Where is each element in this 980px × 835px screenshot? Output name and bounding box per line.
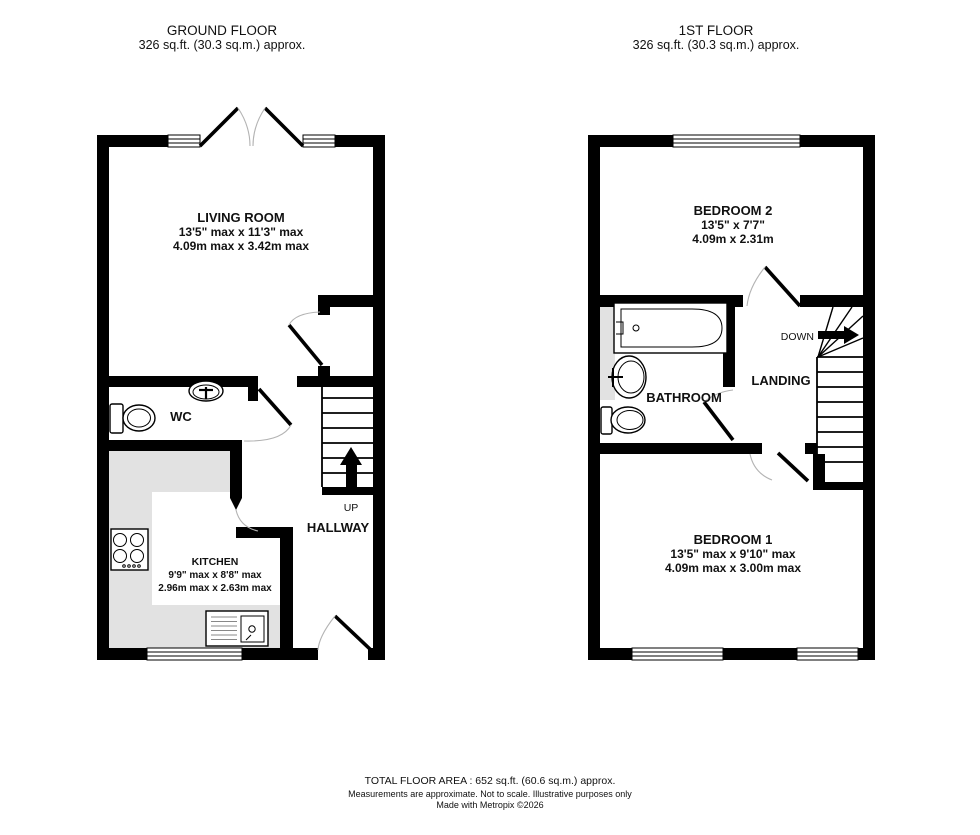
credit-text: Made with Metropix ©2026: [436, 800, 543, 810]
wc-label: WC: [170, 409, 192, 424]
footer: TOTAL FLOOR AREA : 652 sq.ft. (60.6 sq.m…: [348, 775, 632, 810]
kitchen-label: KITCHEN: [192, 556, 239, 568]
down-arrow-icon: [818, 326, 859, 344]
ground-floor-title: GROUND FLOOR: [167, 23, 278, 38]
living-room-dimensions-metric: 4.09m max x 3.42m max: [173, 239, 309, 253]
floorplan-page: GROUND FLOOR 326 sq.ft. (30.3 sq.m.) app…: [0, 0, 980, 835]
staircase-ground: [322, 387, 373, 493]
kitchen-dimensions-imperial: 9'9" max x 8'8" max: [168, 570, 262, 581]
ground-floor-plan: LIVING ROOM 13'5" max x 11'3" max 4.09m …: [97, 108, 385, 660]
bedroom1-window-left: [632, 648, 723, 660]
kitchen-window: [147, 648, 242, 660]
ground-floor-area: 326 sq.ft. (30.3 sq.m.) approx.: [139, 38, 306, 52]
bedroom1-label: BEDROOM 1: [694, 532, 773, 547]
bedroom2-dimensions-metric: 4.09m x 2.31m: [692, 232, 773, 246]
french-doors: [200, 108, 303, 146]
landing-label: LANDING: [751, 373, 810, 388]
front-door: [318, 616, 372, 651]
bedroom2-door: [747, 267, 800, 306]
living-room-window-right: [303, 135, 335, 147]
living-room-window-left: [168, 135, 200, 147]
first-floor-plan: BEDROOM 2 13'5" x 7'7" 4.09m x 2.31m BAT…: [588, 135, 875, 660]
bedroom2-dimensions-imperial: 13'5" x 7'7": [701, 218, 765, 232]
kitchen-hob: [111, 529, 148, 570]
bedroom1-dimensions-imperial: 13'5" max x 9'10" max: [670, 547, 796, 561]
hallway-label: HALLWAY: [307, 520, 370, 535]
bedroom2-label: BEDROOM 2: [694, 203, 773, 218]
bedroom1-door: [750, 453, 808, 481]
floorplan-canvas: GROUND FLOOR 326 sq.ft. (30.3 sq.m.) app…: [0, 0, 980, 835]
total-floor-area-text: TOTAL FLOOR AREA : 652 sq.ft. (60.6 sq.m…: [365, 775, 616, 787]
bedroom1-dimensions-metric: 4.09m max x 3.00m max: [665, 561, 801, 575]
living-room-label: LIVING ROOM: [197, 210, 284, 225]
bathtub: [614, 303, 727, 353]
living-room-dimensions-imperial: 13'5" max x 11'3" max: [179, 225, 304, 239]
kitchen-sink-unit: [206, 611, 268, 646]
down-label: DOWN: [781, 331, 814, 343]
bathroom-label: BATHROOM: [646, 390, 722, 405]
wc-toilet: [110, 404, 155, 433]
bedroom2-window: [673, 135, 800, 147]
first-floor-title: 1ST FLOOR: [679, 23, 754, 38]
disclaimer-text: Measurements are approximate. Not to sca…: [348, 789, 632, 799]
wc-sink: [189, 381, 223, 401]
living-room-door: [289, 312, 322, 365]
first-floor-area: 326 sq.ft. (30.3 sq.m.) approx.: [633, 38, 800, 52]
up-arrow-icon: [340, 447, 362, 493]
bedroom1-window-right: [797, 648, 858, 660]
up-label: UP: [344, 502, 359, 514]
bathroom-toilet: [601, 407, 645, 434]
kitchen-dimensions-metric: 2.96m max x 2.63m max: [158, 583, 272, 594]
